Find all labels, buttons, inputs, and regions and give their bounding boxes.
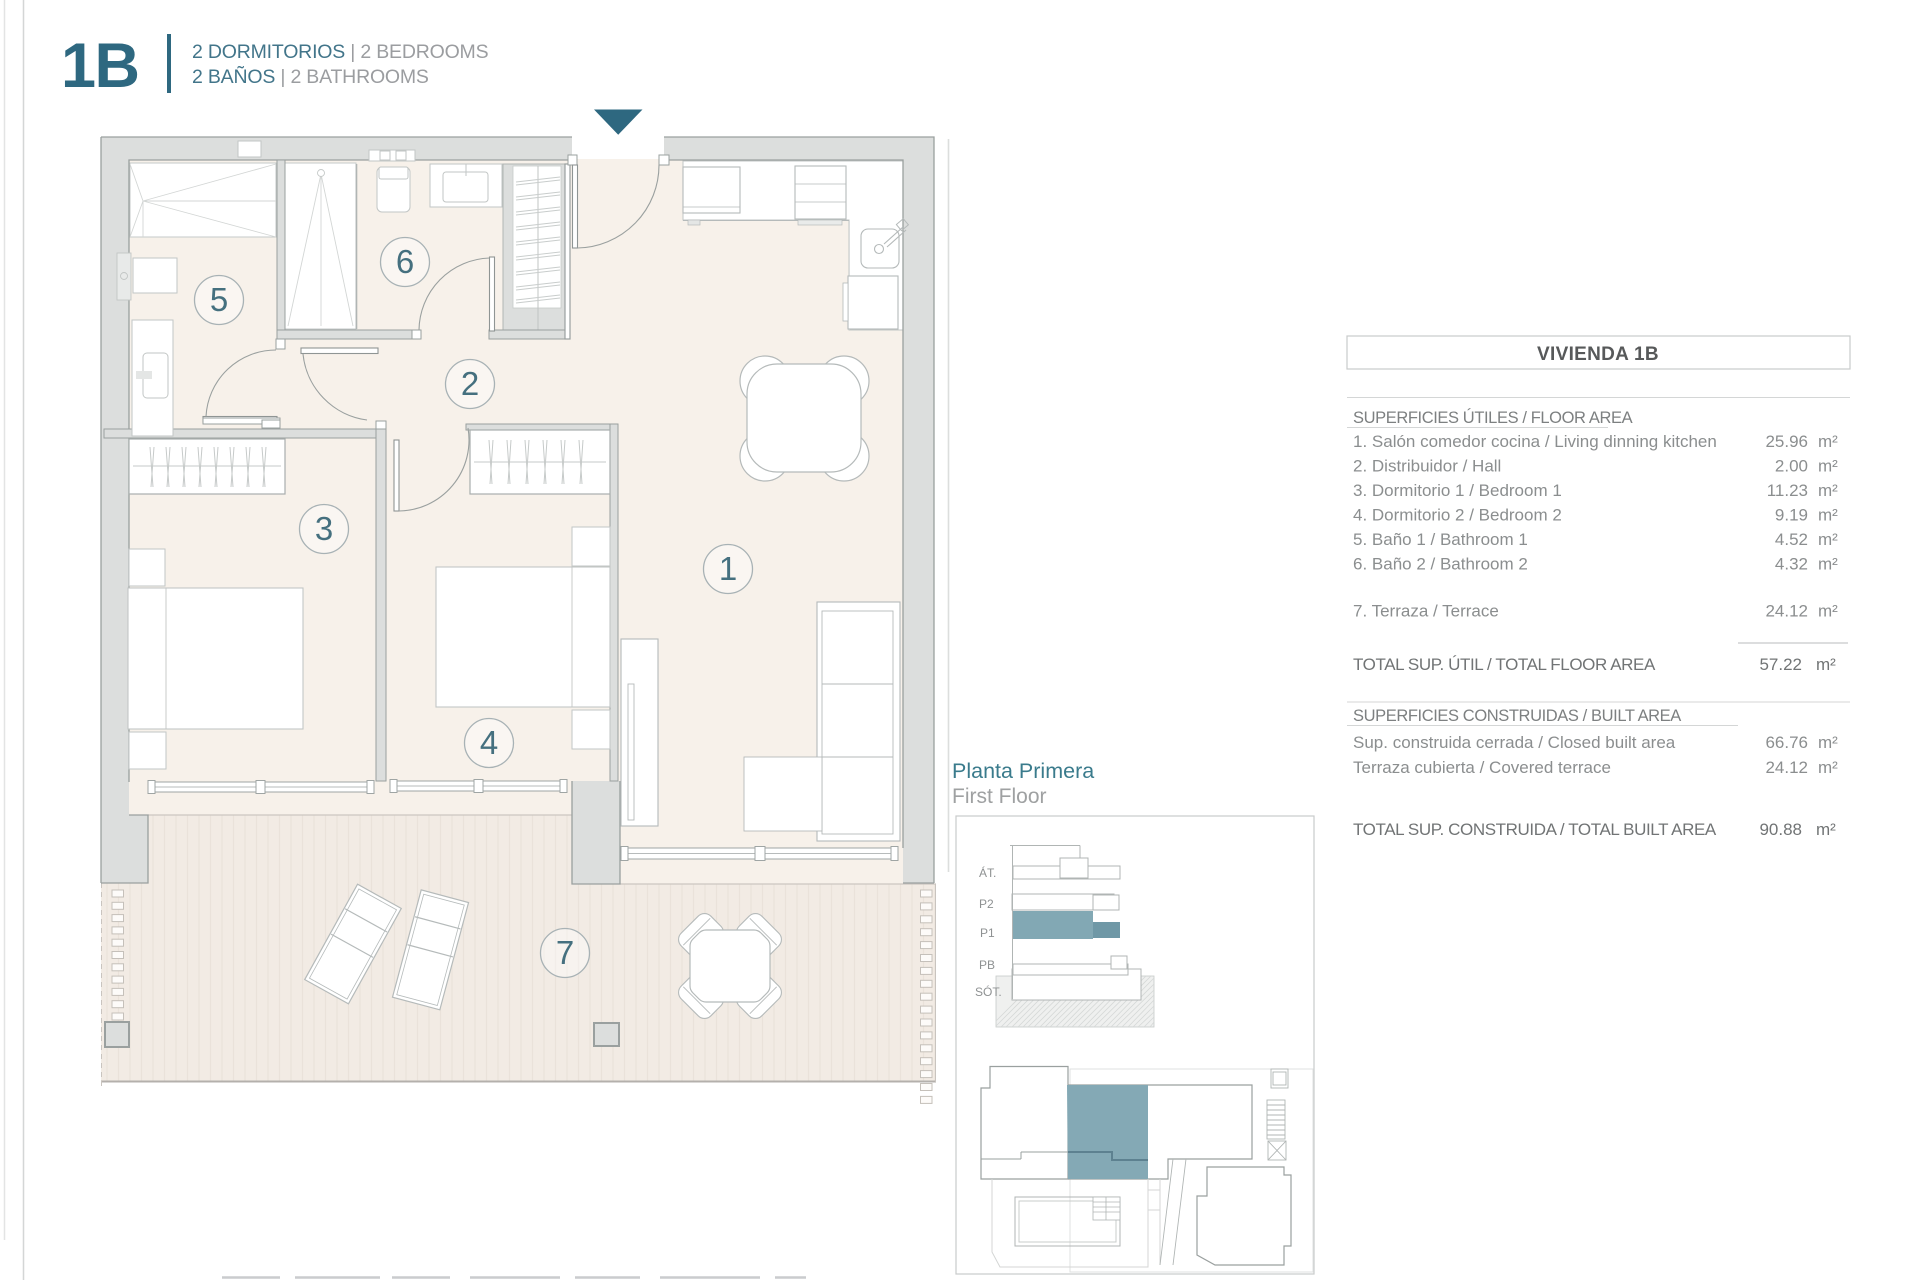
svg-text:6: 6 xyxy=(396,243,414,280)
svg-text:PB: PB xyxy=(979,958,995,972)
svg-text:m²: m² xyxy=(1818,602,1838,621)
svg-text:11.23: 11.23 xyxy=(1767,481,1808,500)
svg-text:P1: P1 xyxy=(980,926,995,940)
svg-text:m²: m² xyxy=(1818,733,1838,752)
svg-text:4: 4 xyxy=(480,724,498,761)
svg-text:m²: m² xyxy=(1818,530,1838,549)
svg-text:SUPERFICIES CONSTRUIDAS / BUIL: SUPERFICIES CONSTRUIDAS / BUILT AREA xyxy=(1353,707,1681,725)
svg-text:24.12: 24.12 xyxy=(1765,758,1808,777)
svg-text:ÁT.: ÁT. xyxy=(979,865,996,880)
svg-text:3. Dormitorio 1 / Bedroom 1: 3. Dormitorio 1 / Bedroom 1 xyxy=(1353,481,1562,500)
svg-text:1B: 1B xyxy=(61,31,139,101)
svg-text:6. Baño 2 / Bathroom 2: 6. Baño 2 / Bathroom 2 xyxy=(1353,555,1528,574)
svg-text:m²: m² xyxy=(1816,655,1836,674)
svg-text:2 BAÑOS | 2 BATHROOMS: 2 BAÑOS | 2 BATHROOMS xyxy=(192,64,429,88)
svg-text:m²: m² xyxy=(1818,457,1838,476)
svg-text:66.76: 66.76 xyxy=(1765,733,1808,752)
svg-text:57.22: 57.22 xyxy=(1759,655,1802,674)
svg-text:m²: m² xyxy=(1818,758,1838,777)
svg-text:5: 5 xyxy=(210,281,228,318)
svg-text:25.96: 25.96 xyxy=(1765,432,1808,451)
svg-text:SÓT.: SÓT. xyxy=(975,984,1002,999)
svg-text:TOTAL SUP. CONSTRUIDA / TOTAL: TOTAL SUP. CONSTRUIDA / TOTAL BUILT AREA xyxy=(1353,820,1717,839)
svg-text:Planta Primera: Planta Primera xyxy=(952,759,1094,783)
svg-text:2.00: 2.00 xyxy=(1775,457,1808,476)
svg-text:m²: m² xyxy=(1816,820,1836,839)
svg-text:m²: m² xyxy=(1818,481,1838,500)
svg-text:m²: m² xyxy=(1818,432,1838,451)
svg-text:4.32: 4.32 xyxy=(1775,555,1808,574)
svg-text:5. Baño 1 / Bathroom 1: 5. Baño 1 / Bathroom 1 xyxy=(1353,530,1528,549)
svg-text:1. Salón comedor cocina / Livi: 1. Salón comedor cocina / Living dinning… xyxy=(1353,432,1717,451)
svg-text:SUPERFICIES ÚTILES / FLOOR ARE: SUPERFICIES ÚTILES / FLOOR AREA xyxy=(1353,408,1633,427)
svg-text:Sup. construida cerrada / Clos: Sup. construida cerrada / Closed built a… xyxy=(1353,733,1676,752)
svg-text:First Floor: First Floor xyxy=(952,785,1047,808)
svg-text:24.12: 24.12 xyxy=(1765,602,1808,621)
svg-text:9.19: 9.19 xyxy=(1775,506,1808,525)
svg-text:4. Dormitorio 2 / Bedroom 2: 4. Dormitorio 2 / Bedroom 2 xyxy=(1353,506,1562,525)
svg-text:7: 7 xyxy=(556,934,574,971)
svg-text:VIVIENDA 1B: VIVIENDA 1B xyxy=(1537,344,1659,365)
svg-text:m²: m² xyxy=(1818,555,1838,574)
svg-text:P2: P2 xyxy=(979,897,994,911)
svg-text:90.88: 90.88 xyxy=(1759,820,1802,839)
svg-text:4.52: 4.52 xyxy=(1775,530,1808,549)
svg-text:Terraza cubierta / Covered ter: Terraza cubierta / Covered terrace xyxy=(1353,758,1611,777)
svg-text:2 DORMITORIOS | 2 BEDROOMS: 2 DORMITORIOS | 2 BEDROOMS xyxy=(192,41,489,63)
svg-text:7. Terraza / Terrace: 7. Terraza / Terrace xyxy=(1353,602,1499,621)
svg-text:2. Distribuidor / Hall: 2. Distribuidor / Hall xyxy=(1353,457,1501,476)
svg-text:2: 2 xyxy=(461,365,479,402)
svg-text:m²: m² xyxy=(1818,506,1838,525)
svg-text:3: 3 xyxy=(315,510,333,547)
svg-text:1: 1 xyxy=(719,550,737,587)
svg-text:TOTAL SUP. ÚTIL / TOTAL FLOOR: TOTAL SUP. ÚTIL / TOTAL FLOOR AREA xyxy=(1353,655,1656,674)
